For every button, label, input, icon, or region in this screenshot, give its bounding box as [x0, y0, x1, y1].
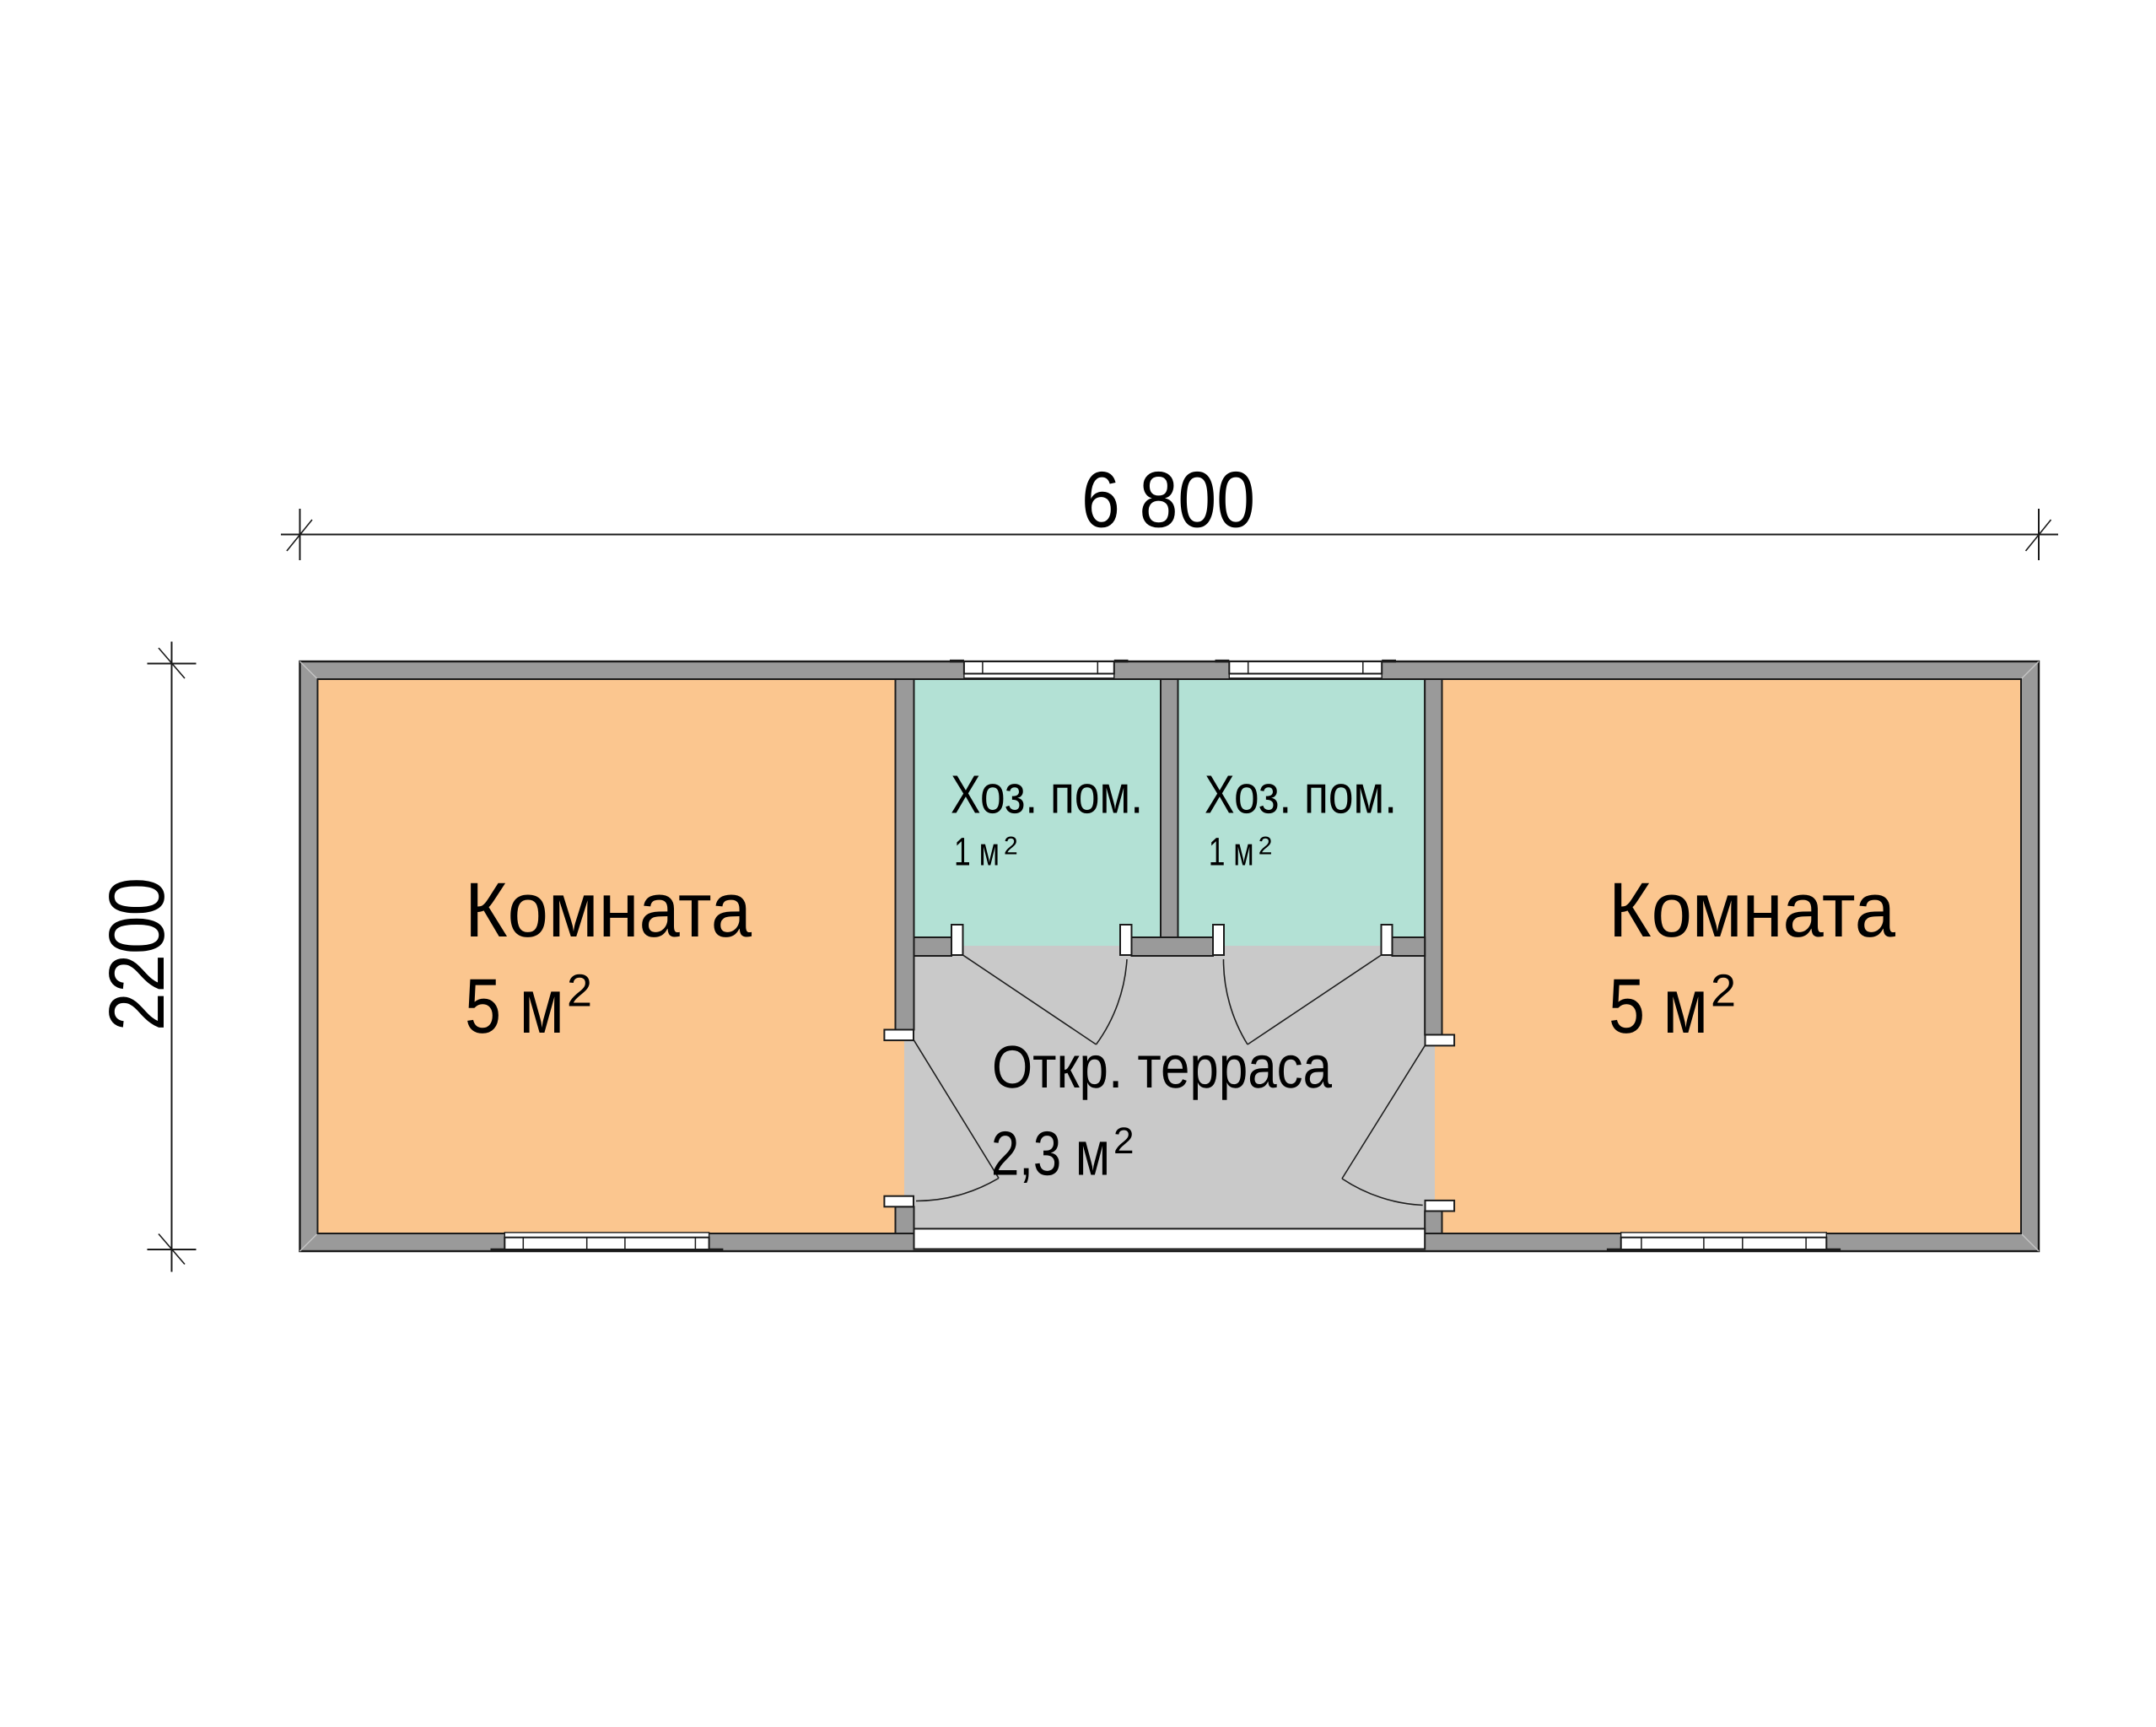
svg-text:2: 2: [567, 966, 592, 1017]
svg-text:Хоз. пом.: Хоз. пом.: [951, 764, 1143, 825]
svg-text:5 м: 5 м: [1609, 963, 1708, 1050]
svg-text:2: 2: [1259, 833, 1273, 861]
svg-text:2: 2: [1711, 966, 1736, 1017]
svg-text:6 800: 6 800: [1081, 456, 1255, 544]
svg-text:2200: 2200: [93, 877, 181, 1031]
svg-text:Откр. терраса: Откр. терраса: [992, 1034, 1332, 1101]
svg-text:1 м: 1 м: [954, 829, 1000, 874]
svg-text:2: 2: [1004, 833, 1018, 861]
svg-text:Хоз. пом.: Хоз. пом.: [1205, 764, 1397, 825]
svg-text:2,3 м: 2,3 м: [991, 1118, 1110, 1188]
svg-text:5 м: 5 м: [465, 963, 564, 1050]
svg-text:Комната: Комната: [465, 867, 752, 953]
svg-text:1 м: 1 м: [1209, 829, 1254, 874]
svg-text:2: 2: [1113, 1120, 1134, 1162]
svg-text:Комната: Комната: [1609, 867, 1896, 953]
